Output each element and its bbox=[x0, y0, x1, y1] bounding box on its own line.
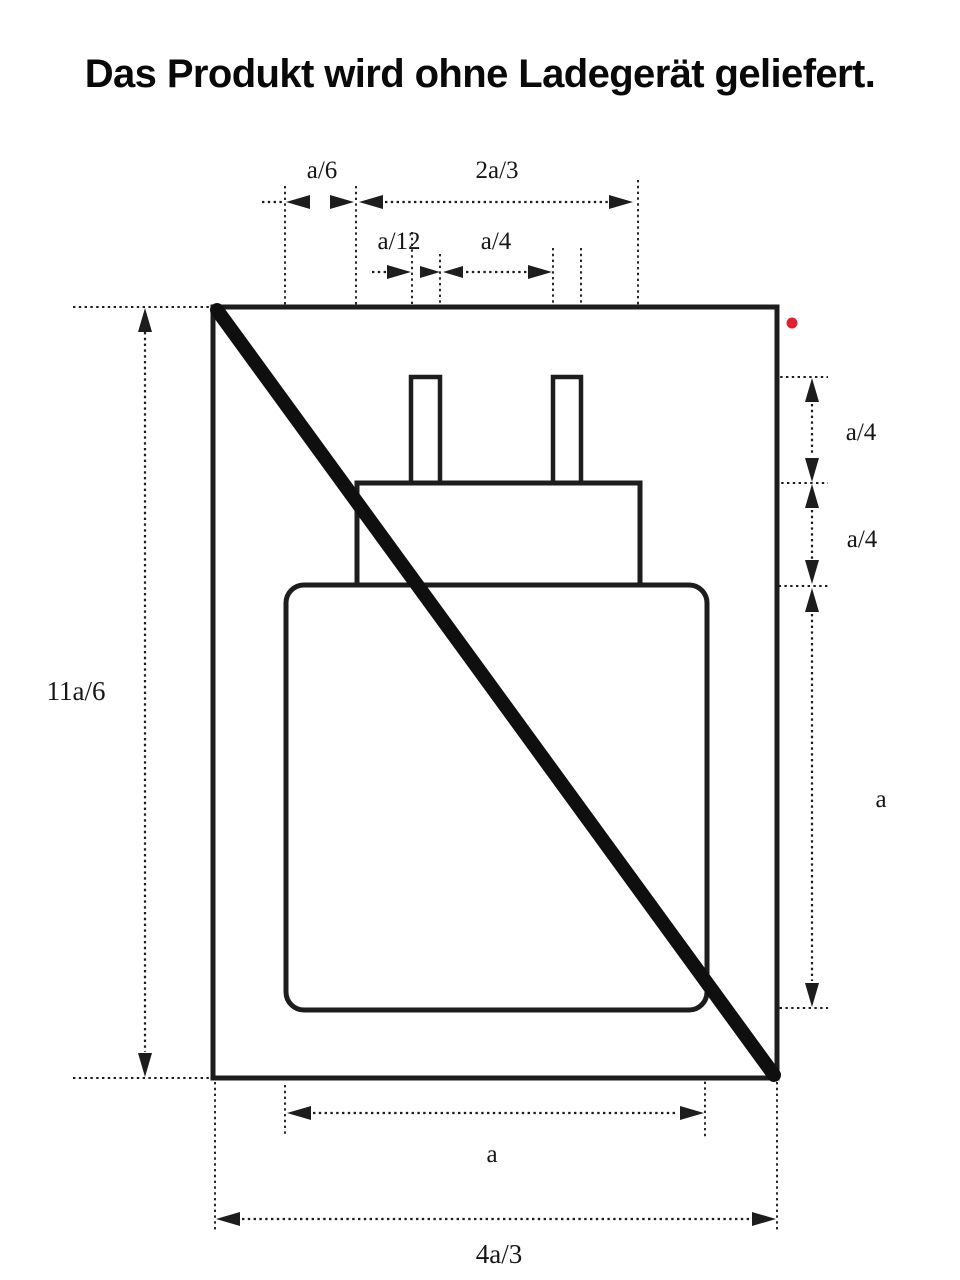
dim-a4-prong: a/4 bbox=[805, 378, 877, 482]
arrowhead-right bbox=[680, 1106, 704, 1120]
arrowhead-up bbox=[805, 588, 819, 612]
arrowhead-up bbox=[805, 378, 819, 402]
dim-a-bottom: a bbox=[287, 1106, 704, 1168]
charger-body bbox=[286, 585, 707, 1010]
label-11a6: 11a/6 bbox=[47, 676, 106, 706]
arrowhead-left bbox=[287, 1106, 311, 1120]
arrowhead-right bbox=[420, 266, 440, 278]
label-2a3: 2a/3 bbox=[475, 157, 518, 184]
arrowhead-right bbox=[528, 265, 552, 279]
arrowhead-left bbox=[216, 1212, 240, 1226]
dim-a4-gap: a/4 bbox=[443, 228, 552, 279]
prong-right bbox=[553, 377, 581, 483]
arrowhead-up bbox=[805, 484, 819, 508]
dim-11a6: 11a/6 bbox=[47, 308, 152, 1077]
arrowhead-right bbox=[387, 265, 411, 279]
dim-2a3: 2a/3 bbox=[359, 157, 633, 209]
arrowhead-up bbox=[138, 308, 152, 332]
label-a6: a/6 bbox=[307, 157, 338, 184]
arrowhead-right bbox=[330, 195, 354, 209]
dim-a-right: a bbox=[805, 588, 887, 1007]
arrowhead-left bbox=[286, 195, 310, 209]
label-a4-prong: a/4 bbox=[846, 419, 877, 446]
label-a4-neck: a/4 bbox=[847, 526, 878, 553]
arrowhead-down bbox=[805, 458, 819, 482]
dim-a4-neck: a/4 bbox=[805, 484, 878, 584]
label-a4-gap: a/4 bbox=[481, 228, 512, 255]
dim-4a3: 4a/3 bbox=[216, 1212, 776, 1269]
arrowhead-down bbox=[805, 560, 819, 584]
dim-a12: a/12 bbox=[372, 228, 440, 279]
prong-left bbox=[411, 377, 440, 483]
arrowhead-right bbox=[752, 1212, 776, 1226]
charger-dimension-diagram: a/6 2a/3 a/12 a/4 11a/6 a/4 a/ bbox=[0, 0, 960, 1280]
arrowhead-down bbox=[805, 983, 819, 1007]
label-4a3: 4a/3 bbox=[476, 1239, 523, 1269]
label-a12: a/12 bbox=[377, 228, 420, 255]
arrowhead-down bbox=[138, 1053, 152, 1077]
label-a-bottom: a bbox=[486, 1141, 497, 1168]
arrowhead-left bbox=[359, 195, 383, 209]
label-a-right: a bbox=[875, 786, 886, 813]
arrowhead-left bbox=[443, 266, 463, 278]
red-dot bbox=[787, 318, 798, 329]
arrowhead-right bbox=[609, 195, 633, 209]
dim-a6: a/6 bbox=[262, 157, 354, 209]
